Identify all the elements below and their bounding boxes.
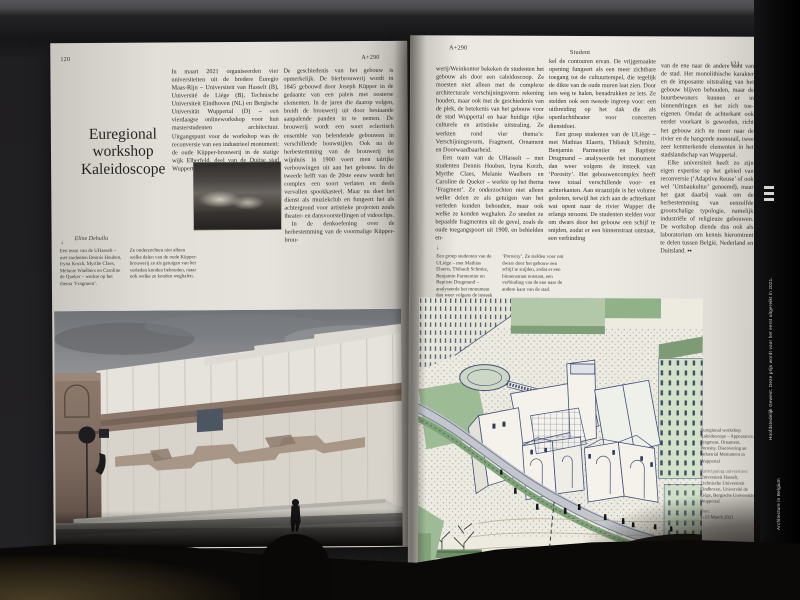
axonometric-graphic [418,297,703,565]
project-caption: Euregional workshop Kaleidoscope – Appea… [700,429,756,523]
down-arrow-icon: ↓ [436,245,439,251]
paragraph: In de denkoefening over de herbestemming… [284,220,394,245]
paragraph: Een groep studenten van de ULiège – met … [548,130,655,243]
left-page-number: 120 [60,56,70,63]
paragraph: In maart 2021 organiseerden vier univers… [171,68,279,174]
magazine-photo: 120 A+290 Euregional workshop Kaleidosco… [0,0,800,600]
title-line-1: Euregional [65,125,181,143]
paragraph: Een team van de UHasselt – met studenten… [435,154,543,243]
left-column-2: De geschiedenis van het gebouw is opmerk… [283,67,394,245]
paragraph: kel de contouren ervan. De vrijgemaakte … [549,58,656,131]
workshop-date: 3–13 March 2021 [700,516,756,522]
right-column-2: kel de contouren ervan. De vrijgemaakte … [548,58,656,244]
left-column-1: In maart 2021 organiseerden vier univers… [171,68,279,174]
author-name: Eline Dehullu [75,236,109,242]
paragraph: De geschiedenis van het gebouw is opmerk… [283,67,394,221]
table-shadow-band [0,540,800,600]
article-title: Euregional workshop Kaleidoscope [65,125,181,178]
article-end-mark: ▪▪ [687,248,691,255]
page-edge-mark-icon [764,186,774,204]
magazine-edge: Hoofdstedelijk Gewest. Deze prijs wordt … [754,0,800,600]
spine-text-top: Hoofdstedelijk Gewest. Deze prijs wordt … [768,140,773,440]
axonometric-illustration [418,297,703,565]
title-line-2: workshop [65,143,181,161]
left-page: 120 A+290 Euregional workshop Kaleidosco… [50,41,411,549]
right-column-3: van de ene naar de andere kant van de st… [660,62,754,256]
right-page: A+290 Student 121 werij/Weinkontor bekek… [408,35,758,567]
spine-text-mid: Architecture in Belgium [776,420,781,530]
title-line-3: Kaleidoscope [65,160,181,178]
model-render-photo [54,309,403,548]
paragraph: werij/Weinkontor bekeken de studenten he… [436,65,544,154]
right-caption-col2: ‘Porosity’. Ze stelden voor om dwars doo… [502,255,564,294]
photographer-shadow [260,534,330,600]
model-render-graphic [54,309,403,548]
section-header: Student [548,49,612,56]
left-issue-header: A+290 [361,54,379,61]
paragraph: Elke universiteit heeft zo zijn eigen ex… [660,159,753,256]
down-arrow-icon: ↓ [61,240,64,246]
left-caption-col1: Een team van de UHasselt – met studenten… [60,249,122,288]
left-caption-col2: Ze onderzochten niet alleen welke delen … [130,248,198,281]
historic-brewery-photo [193,162,281,231]
participating-universities: Universiteit Hasselt, Technische Univers… [700,475,756,506]
project-title: Euregional workshop Kaleidoscope – Appea… [700,429,756,466]
right-issue-header: A+290 [449,44,467,51]
right-column-1: werij/Weinkontor bekeken de studenten he… [435,65,544,243]
paragraph: van de ene naar de andere kant van de st… [661,62,754,159]
